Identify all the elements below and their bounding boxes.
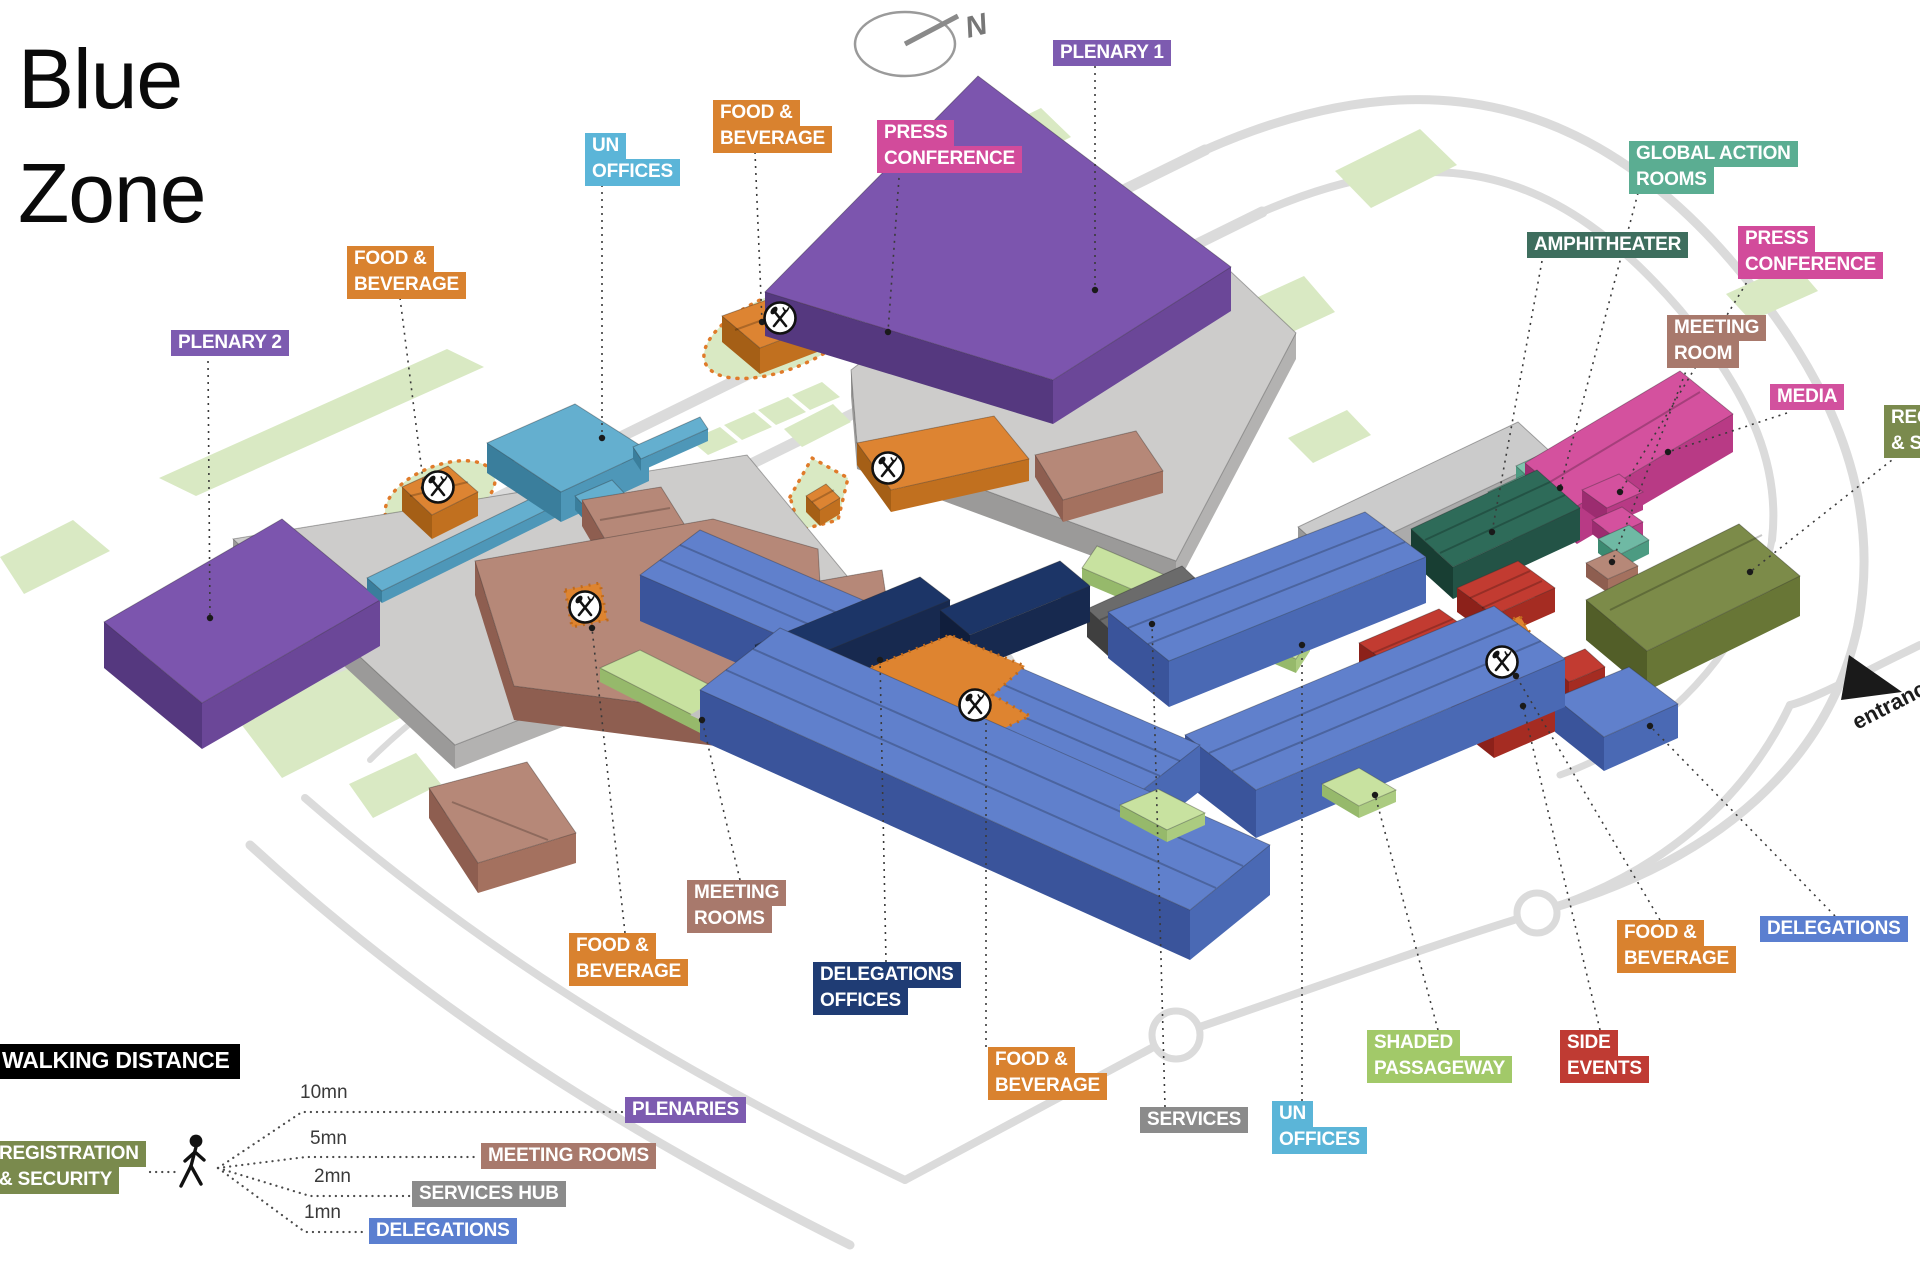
leader-dot <box>877 657 883 663</box>
leader-line <box>755 152 762 322</box>
legend-connector-lines <box>150 1112 622 1232</box>
green-area <box>758 397 806 425</box>
leader-dot <box>885 329 891 335</box>
leader-dot <box>1520 703 1526 709</box>
leader-dot <box>1489 529 1495 535</box>
legend-services-hub: SERVICES HUB <box>412 1181 566 1207</box>
fork-spoon-icon <box>423 472 454 503</box>
label-food-beverage-left: FOOD &BEVERAGE <box>347 246 466 299</box>
legend-time-5mn: 5mn <box>310 1128 347 1150</box>
label-media: MEDIA <box>1770 384 1844 410</box>
label-food-beverage-bottommid: FOOD &BEVERAGE <box>988 1047 1107 1100</box>
legend-time-10mn: 10mn <box>300 1082 348 1104</box>
label-food-beverage-bottomleft: FOOD &BEVERAGE <box>569 933 688 986</box>
fork-spoon-icon <box>873 453 904 484</box>
leader-dot <box>1557 485 1563 491</box>
label-un-offices-bottom: UNOFFICES <box>1272 1101 1367 1154</box>
leader-dot <box>1149 621 1155 627</box>
leader-dot <box>1372 792 1378 798</box>
label-meeting-rooms: MEETINGROOMS <box>687 880 786 933</box>
roundabout <box>1152 1011 1200 1059</box>
fork-spoon-icon <box>1487 647 1518 678</box>
legend-delegations: DELEGATIONS <box>369 1218 517 1244</box>
blue-zone-map-page: N Blue Zone PLENARY 1 FOOD &BEVERAGE PRE… <box>0 0 1920 1280</box>
leader-dot <box>1617 489 1623 495</box>
legend-time-2mn: 2mn <box>314 1166 351 1188</box>
legend-title: WALKING DISTANCE <box>0 1044 240 1079</box>
page-title: Blue Zone <box>18 22 205 250</box>
buildings <box>104 76 1800 960</box>
label-registration-security-right: REGISTRATION& SECURITY <box>1884 405 1920 458</box>
label-food-beverage-bottomright: FOOD &BEVERAGE <box>1617 920 1736 973</box>
green-area <box>1288 410 1371 463</box>
roundabout <box>1517 893 1557 933</box>
title-line-2: Zone <box>18 136 205 250</box>
label-shaded-passageway: SHADEDPASSAGEWAY <box>1367 1030 1512 1083</box>
label-delegations: DELEGATIONS <box>1760 916 1908 942</box>
walking-person-icon <box>181 1135 204 1186</box>
green-area <box>0 520 110 594</box>
leader-dot <box>1609 559 1615 565</box>
meeting-rooms-south-annex <box>429 762 576 893</box>
leader-dot <box>1299 642 1305 648</box>
leader-dot <box>1665 449 1671 455</box>
legend-meeting-rooms: MEETING ROOMS <box>481 1143 656 1169</box>
compass-north-label: N <box>962 7 992 45</box>
legend-plenaries: PLENARIES <box>625 1097 746 1123</box>
green-area <box>724 412 772 440</box>
label-food-beverage-top: FOOD &BEVERAGE <box>713 100 832 153</box>
green-area <box>1335 129 1457 208</box>
legend-time-1mn: 1mn <box>304 1202 341 1224</box>
label-global-action-rooms: GLOBAL ACTIONROOMS <box>1629 141 1798 194</box>
label-plenary-1: PLENARY 1 <box>1053 40 1171 66</box>
leader-dot <box>207 615 213 621</box>
fork-spoon-icon <box>570 592 601 623</box>
label-side-events: SIDEEVENTS <box>1560 1030 1649 1083</box>
leader-dot <box>1647 723 1653 729</box>
label-press-conference-top: PRESSCONFERENCE <box>877 120 1022 173</box>
green-area <box>349 753 441 818</box>
leader-dot <box>1747 569 1753 575</box>
label-amphitheater: AMPHITHEATER <box>1527 232 1688 258</box>
legend-registration-security: REGISTRATION& SECURITY <box>0 1141 146 1194</box>
label-press-conference-right: PRESSCONFERENCE <box>1738 226 1883 279</box>
leader-dot <box>699 717 705 723</box>
label-meeting-room: MEETINGROOM <box>1667 315 1766 368</box>
road <box>1176 913 1537 1035</box>
leader-line <box>1650 726 1835 916</box>
label-plenary-2: PLENARY 2 <box>171 330 289 356</box>
fork-spoon-icon <box>765 303 796 334</box>
fork-spoon-icon <box>960 690 991 721</box>
title-line-1: Blue <box>18 22 205 136</box>
compass-icon: N <box>855 7 992 76</box>
label-delegations-offices: DELEGATIONSOFFICES <box>813 962 961 1015</box>
leader-dot <box>589 625 595 631</box>
leader-dot <box>599 435 605 441</box>
leader-line <box>1375 795 1438 1030</box>
leader-dot <box>1092 287 1098 293</box>
label-services: SERVICES <box>1140 1107 1248 1133</box>
label-un-offices-top: UNOFFICES <box>585 133 680 186</box>
